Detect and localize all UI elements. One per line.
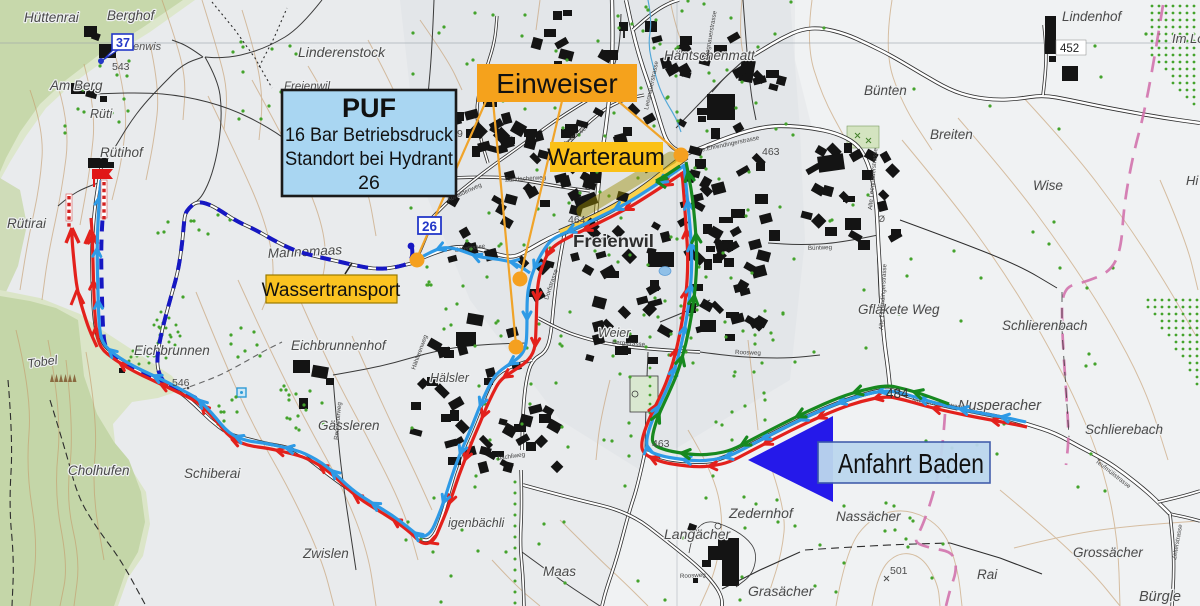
- svg-text:Roosweg: Roosweg: [680, 572, 707, 580]
- svg-text:Ø: Ø: [878, 214, 885, 224]
- svg-text:Hälsler: Hälsler: [430, 371, 470, 385]
- svg-text:PUF: PUF: [342, 93, 396, 123]
- svg-text:Nassächer: Nassächer: [836, 509, 901, 524]
- svg-text:464: 464: [568, 214, 586, 226]
- svg-text:Eichbrunnenhof: Eichbrunnenhof: [291, 338, 387, 353]
- svg-text:Hi: Hi: [1186, 173, 1199, 188]
- svg-text:Büntweg: Büntweg: [808, 244, 833, 252]
- svg-text:Wassertransport: Wassertransport: [262, 280, 401, 301]
- svg-text:Langächer: Langächer: [664, 526, 732, 542]
- svg-text:Einweiser: Einweiser: [496, 68, 617, 99]
- svg-text:9: 9: [457, 128, 463, 140]
- svg-text:Bünten: Bünten: [864, 83, 907, 98]
- svg-text:Rai: Rai: [977, 567, 998, 582]
- svg-text:Roosweg: Roosweg: [735, 349, 762, 357]
- svg-text:463: 463: [762, 146, 780, 158]
- svg-text:Breiten: Breiten: [930, 127, 973, 142]
- svg-text:Im Lo: Im Lo: [1172, 31, 1200, 46]
- svg-text:Gfläkete Weg: Gfläkete Weg: [858, 302, 940, 317]
- svg-text:Bürgle: Bürgle: [1139, 589, 1181, 605]
- svg-text:Anfahrt Baden: Anfahrt Baden: [838, 448, 984, 479]
- svg-text:enwis: enwis: [133, 41, 162, 53]
- svg-text:452: 452: [1060, 43, 1079, 55]
- svg-text:16 Bar Betriebsdruck: 16 Bar Betriebsdruck: [285, 124, 453, 146]
- svg-text:Schiberai: Schiberai: [184, 466, 241, 481]
- svg-text:Cholhufen: Cholhufen: [68, 463, 130, 478]
- svg-text:Hüttenrai: Hüttenrai: [24, 10, 80, 25]
- svg-text:26: 26: [422, 219, 438, 234]
- svg-text:Zwislen: Zwislen: [302, 546, 349, 561]
- svg-text:Rütihof: Rütihof: [100, 145, 144, 160]
- svg-text:Warteraum: Warteraum: [547, 144, 665, 171]
- svg-text:Weier: Weier: [598, 326, 631, 340]
- svg-text:484: 484: [886, 386, 909, 401]
- svg-text:Eichbrunnen: Eichbrunnen: [134, 343, 210, 358]
- svg-text:Gässleren: Gässleren: [318, 418, 380, 433]
- svg-text:Berghof: Berghof: [107, 8, 156, 23]
- svg-text:Linderenstock: Linderenstock: [298, 44, 386, 60]
- svg-text:Freienwil: Freienwil: [573, 231, 654, 251]
- svg-text:Schlierebach: Schlierebach: [1085, 422, 1163, 437]
- svg-text:543: 543: [112, 61, 130, 73]
- svg-text:Lindenhof: Lindenhof: [1062, 9, 1123, 24]
- svg-text:26: 26: [358, 172, 380, 194]
- svg-text:Maas: Maas: [543, 564, 576, 579]
- svg-text:Standort bei Hydrant: Standort bei Hydrant: [285, 148, 454, 170]
- svg-text:Wise: Wise: [1033, 178, 1063, 193]
- svg-text:463: 463: [652, 438, 670, 450]
- svg-text:Am Berg: Am Berg: [49, 78, 103, 93]
- svg-text:Zedernhof: Zedernhof: [728, 505, 795, 521]
- svg-text:Rüti: Rüti: [90, 107, 113, 121]
- svg-text:37: 37: [116, 36, 130, 50]
- svg-text:Grasächer: Grasächer: [748, 583, 815, 599]
- svg-text:igenbächli: igenbächli: [448, 516, 506, 530]
- svg-text:Schlierenbach: Schlierenbach: [1002, 318, 1088, 333]
- svg-text:Rütirai: Rütirai: [7, 216, 47, 231]
- svg-text:501: 501: [890, 565, 908, 577]
- svg-text:Grossächer: Grossächer: [1073, 545, 1143, 560]
